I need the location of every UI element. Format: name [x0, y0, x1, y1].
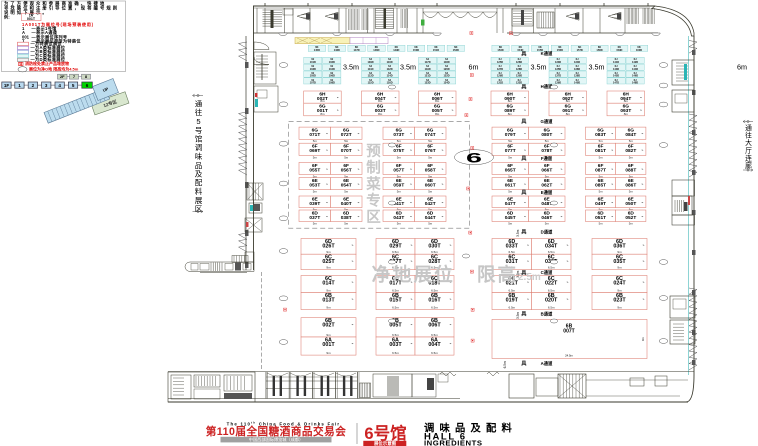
svg-text:141D: 141D: [613, 60, 619, 64]
svg-text:066T: 066T: [541, 167, 552, 173]
svg-text:112D: 112D: [387, 67, 393, 71]
svg-text:053T: 053T: [309, 183, 320, 189]
svg-text:025T: 025T: [322, 259, 335, 265]
svg-text:139D: 139D: [555, 81, 561, 85]
svg-text:135D: 135D: [555, 67, 561, 71]
svg-text:073T: 073T: [393, 132, 404, 138]
svg-text:120D: 120D: [443, 67, 449, 71]
svg-text:149D: 149D: [393, 48, 399, 52]
svg-text:调: 调: [195, 143, 203, 152]
svg-text:124D: 124D: [443, 81, 449, 85]
svg-text:002T: 002T: [322, 323, 335, 329]
svg-text:077T: 077T: [505, 148, 516, 154]
svg-text:C通道: C通道: [541, 269, 553, 276]
svg-text:F通道: F通道: [541, 155, 553, 162]
svg-text:6m: 6m: [469, 62, 479, 71]
svg-text:130D: 130D: [516, 74, 522, 78]
svg-text:9m: 9m: [617, 289, 622, 293]
svg-text:5m: 5m: [545, 221, 550, 225]
svg-text:8m: 8m: [435, 99, 440, 103]
svg-text:中国西部国际博览城（成都）: 中国西部国际博览城（成都）: [249, 436, 303, 443]
svg-text:126D: 126D: [516, 60, 522, 64]
svg-text:5m: 5m: [508, 155, 513, 159]
svg-text:8m: 8m: [624, 99, 629, 103]
svg-text:5m: 5m: [508, 190, 513, 194]
svg-text:029T: 029T: [389, 243, 402, 249]
svg-text:B通道: B通道: [541, 311, 553, 318]
svg-text:153D: 153D: [497, 48, 503, 52]
svg-text:具: 具: [520, 228, 527, 236]
svg-text:156D: 156D: [557, 48, 563, 52]
svg-text:019T: 019T: [506, 297, 519, 303]
svg-text:9m: 9m: [617, 266, 622, 270]
svg-text:043T: 043T: [393, 215, 404, 221]
svg-text:制: 制: [366, 159, 381, 177]
svg-text:6.5m: 6.5m: [548, 289, 555, 293]
svg-text:A通道: A通道: [541, 360, 553, 367]
svg-text:8m: 8m: [508, 99, 513, 103]
svg-text:122D: 122D: [443, 74, 449, 78]
svg-text:160D: 160D: [636, 48, 642, 52]
svg-text:159D: 159D: [616, 48, 622, 52]
svg-text:003T: 003T: [389, 342, 402, 348]
svg-text:040T: 040T: [341, 201, 352, 207]
svg-text:2F: 2F: [60, 74, 65, 79]
svg-text:034T: 034T: [545, 243, 558, 249]
svg-text:114D: 114D: [387, 74, 393, 78]
svg-text:6.5m: 6.5m: [392, 333, 399, 337]
svg-text:展: 展: [195, 196, 203, 205]
svg-text:5m: 5m: [508, 139, 513, 143]
svg-text:131D: 131D: [497, 81, 503, 85]
svg-text:137D: 137D: [555, 74, 561, 78]
svg-text:057T: 057T: [393, 167, 404, 173]
svg-text:8m: 8m: [320, 112, 325, 116]
svg-text:078T: 078T: [541, 148, 552, 154]
svg-text:087T: 087T: [595, 167, 606, 173]
svg-text:113D: 113D: [368, 74, 374, 78]
svg-text:5m: 5m: [599, 190, 604, 194]
svg-text:6.5m: 6.5m: [392, 351, 399, 355]
svg-text:056T: 056T: [341, 167, 352, 173]
svg-text:6.5m: 6.5m: [431, 289, 438, 293]
svg-text:限: 限: [477, 264, 496, 285]
svg-text:001T: 001T: [27, 17, 36, 21]
svg-text:INGREDIENTS: INGREDIENTS: [424, 438, 483, 446]
svg-text:044T: 044T: [425, 215, 436, 221]
svg-text:3.5m: 3.5m: [589, 62, 605, 71]
svg-text:6: 6: [86, 83, 89, 88]
svg-text:9m: 9m: [617, 250, 622, 254]
svg-text:145D: 145D: [314, 48, 320, 52]
svg-text:6m: 6m: [737, 62, 747, 71]
svg-text:116D: 116D: [387, 81, 393, 85]
svg-text:050T: 050T: [625, 201, 636, 207]
svg-text:013T: 013T: [322, 297, 335, 303]
svg-text:味: 味: [195, 151, 203, 161]
svg-text:馆: 馆: [195, 134, 203, 144]
svg-text:076T: 076T: [425, 148, 436, 154]
svg-text:148D: 148D: [632, 81, 638, 85]
svg-text:016T: 016T: [428, 297, 441, 303]
svg-text:8m: 8m: [435, 112, 440, 116]
svg-text:3.5m: 3.5m: [516, 270, 520, 277]
svg-text:015T: 015T: [389, 297, 402, 303]
svg-text:位: 位: [434, 264, 453, 285]
svg-text:净: 净: [372, 264, 391, 285]
svg-text:配: 配: [195, 178, 203, 187]
svg-text:8m: 8m: [566, 112, 571, 116]
svg-text:033T: 033T: [506, 243, 519, 249]
svg-text:5m: 5m: [508, 221, 513, 225]
svg-text:6.5m: 6.5m: [503, 361, 507, 368]
svg-text:138D: 138D: [574, 74, 580, 78]
svg-text:070T: 070T: [341, 148, 352, 154]
svg-text:高: 高: [498, 264, 517, 285]
svg-text:005T: 005T: [389, 323, 402, 329]
svg-text:连: 连: [745, 153, 752, 162]
svg-text:038T: 038T: [341, 215, 352, 221]
svg-text:5m: 5m: [397, 190, 402, 194]
svg-text:147D: 147D: [613, 81, 619, 85]
svg-text:5m: 5m: [629, 155, 634, 159]
svg-text:6.5m: 6.5m: [548, 250, 555, 254]
svg-text:24.5m: 24.5m: [565, 354, 573, 358]
svg-text:D通道: D通道: [541, 228, 553, 235]
svg-text:058T: 058T: [425, 167, 436, 173]
svg-text:128D: 128D: [516, 67, 522, 71]
svg-text:及: 及: [195, 170, 203, 179]
svg-text:6.5m: 6.5m: [392, 289, 399, 293]
svg-text:150D: 150D: [413, 48, 419, 52]
svg-text:074T: 074T: [425, 132, 436, 138]
svg-text:046T: 046T: [541, 215, 552, 221]
svg-text:022T: 022T: [545, 280, 558, 286]
svg-text:6.5m: 6.5m: [392, 306, 399, 310]
svg-text:往: 往: [745, 131, 752, 140]
svg-text:具: 具: [520, 188, 527, 196]
svg-text:065T: 065T: [505, 167, 516, 173]
svg-text:157D: 157D: [577, 48, 583, 52]
svg-text:3: 3: [45, 83, 48, 88]
svg-text:151D: 151D: [433, 48, 439, 52]
svg-text:5m: 5m: [313, 139, 318, 143]
svg-text:9m: 9m: [641, 336, 645, 341]
svg-text:119D: 119D: [425, 67, 431, 71]
svg-text:140D: 140D: [574, 81, 580, 85]
svg-text:136D: 136D: [574, 67, 580, 71]
svg-text:5m: 5m: [397, 139, 402, 143]
svg-text:料: 料: [195, 186, 203, 196]
svg-text:5m: 5m: [397, 221, 402, 225]
svg-text:1: 1: [18, 83, 21, 88]
svg-text:036T: 036T: [613, 243, 626, 249]
svg-text:9m: 9m: [326, 289, 331, 293]
svg-text:G通道: G通道: [541, 118, 554, 125]
svg-text:9m: 9m: [617, 306, 622, 310]
svg-text:消防栓处禁止产品堆放物: 消防栓处禁止产品堆放物: [25, 60, 69, 66]
svg-text:具: 具: [520, 154, 527, 162]
svg-text:6.5m: 6.5m: [508, 306, 515, 310]
svg-text:079T: 079T: [505, 132, 516, 138]
svg-text:5m: 5m: [313, 155, 318, 159]
svg-text:通: 通: [745, 123, 752, 132]
svg-text:088T: 088T: [625, 167, 636, 173]
svg-text:3.5m: 3.5m: [516, 312, 520, 319]
svg-text:129D: 129D: [497, 74, 503, 78]
svg-text:5m: 5m: [397, 155, 402, 159]
svg-text:6.5m: 6.5m: [508, 289, 515, 293]
svg-text:071T: 071T: [309, 132, 320, 138]
svg-text:地: 地: [393, 264, 412, 285]
svg-text:085T: 085T: [595, 183, 606, 189]
svg-text:060T: 060T: [425, 183, 436, 189]
svg-text:026T: 026T: [322, 243, 335, 249]
svg-text:5m: 5m: [629, 190, 634, 194]
svg-text:148D: 148D: [373, 48, 379, 52]
svg-text:052T: 052T: [625, 215, 636, 221]
svg-text:110D: 110D: [387, 60, 393, 64]
svg-text:5m: 5m: [428, 139, 433, 143]
svg-text:037T: 037T: [309, 215, 320, 221]
svg-text:152D: 152D: [453, 48, 459, 52]
svg-text:6.5m: 6.5m: [548, 306, 555, 310]
svg-text:8m: 8m: [378, 99, 383, 103]
svg-text:1F: 1F: [4, 83, 10, 88]
svg-text:5m: 5m: [428, 221, 433, 225]
svg-text:3.5m: 3.5m: [531, 62, 547, 71]
svg-text:5m: 5m: [344, 155, 349, 159]
svg-text:5m: 5m: [629, 139, 634, 143]
svg-text:K通道: K通道: [541, 50, 553, 57]
svg-text:6: 6: [466, 151, 483, 166]
svg-text:往: 往: [195, 107, 203, 117]
svg-text:059T: 059T: [393, 183, 404, 189]
svg-text:8m: 8m: [378, 112, 383, 116]
svg-text:006T: 006T: [428, 323, 441, 329]
svg-text:5m: 5m: [428, 190, 433, 194]
svg-text:103D: 103D: [310, 67, 316, 71]
svg-text:9m: 9m: [326, 306, 331, 310]
svg-text:9m: 9m: [326, 351, 331, 355]
svg-text:001T: 001T: [322, 342, 335, 348]
svg-text:145D: 145D: [613, 74, 619, 78]
svg-text:133D: 133D: [555, 60, 561, 64]
svg-text:消: 消: [19, 61, 22, 66]
svg-text:020T: 020T: [545, 297, 558, 303]
svg-text:展位为净O地 限高均为4.5m: 展位为净O地 限高均为4.5m: [28, 66, 79, 72]
svg-text:号: 号: [195, 126, 203, 135]
svg-text:054T: 054T: [341, 183, 352, 189]
svg-text:045T: 045T: [505, 215, 516, 221]
svg-text:5m: 5m: [599, 221, 604, 225]
svg-text:2: 2: [32, 83, 35, 88]
svg-text:121D: 121D: [424, 74, 430, 78]
svg-text:6.5m: 6.5m: [392, 250, 399, 254]
svg-text:5m: 5m: [599, 139, 604, 143]
svg-text:075T: 075T: [393, 148, 404, 154]
svg-text:024T: 024T: [613, 280, 626, 286]
svg-text:第110届全国糖酒商品交易会: 第110届全国糖酒商品交易会: [206, 425, 347, 438]
svg-text:菜: 菜: [365, 175, 381, 193]
svg-text:5m: 5m: [599, 155, 604, 159]
svg-text:049T: 049T: [595, 201, 606, 207]
svg-text:品: 品: [195, 161, 203, 170]
svg-text:125D: 125D: [497, 60, 503, 64]
svg-text:108D: 108D: [329, 81, 335, 85]
svg-text:3.5m: 3.5m: [516, 229, 520, 236]
svg-text:具: 具: [520, 268, 527, 276]
svg-text:6.5m: 6.5m: [508, 250, 515, 254]
svg-text:预: 预: [366, 143, 381, 160]
svg-text:8m: 8m: [508, 112, 513, 116]
svg-text:055T: 055T: [309, 167, 320, 173]
svg-text:通: 通: [195, 99, 203, 109]
svg-text:6.5m: 6.5m: [431, 351, 438, 355]
svg-text:9m: 9m: [326, 266, 331, 270]
svg-text:5m: 5m: [313, 190, 318, 194]
svg-text:109D: 109D: [367, 60, 373, 64]
svg-text:大: 大: [745, 138, 752, 147]
svg-text:具: 具: [520, 310, 527, 318]
svg-text:143D: 143D: [613, 67, 619, 71]
svg-text:5: 5: [196, 117, 200, 126]
svg-text:104D: 104D: [329, 67, 335, 71]
svg-text:146D: 146D: [334, 48, 340, 52]
svg-text:035T: 035T: [613, 259, 626, 265]
svg-text:051T: 051T: [595, 215, 606, 221]
svg-text:062T: 062T: [541, 183, 552, 189]
svg-text:具: 具: [520, 359, 527, 367]
svg-text:5: 5: [72, 83, 75, 88]
svg-text:专: 专: [366, 192, 381, 210]
svg-text:004T: 004T: [428, 342, 441, 348]
svg-text:E通道: E通道: [541, 189, 553, 196]
svg-text:105D: 105D: [310, 74, 316, 78]
svg-text:061T: 061T: [505, 183, 516, 189]
svg-text:厅: 厅: [745, 147, 752, 155]
svg-text:115D: 115D: [368, 81, 374, 85]
svg-text:具: 具: [520, 117, 527, 125]
svg-text:007T: 007T: [563, 328, 574, 334]
svg-text:6.5m: 6.5m: [548, 266, 555, 270]
svg-text:9m: 9m: [326, 333, 331, 337]
svg-text:3.5m: 3.5m: [343, 62, 359, 71]
svg-text:3.5m: 3.5m: [400, 62, 416, 71]
svg-text:5m: 5m: [313, 221, 318, 225]
svg-text:6.5m: 6.5m: [431, 333, 438, 337]
svg-text:042T: 042T: [425, 201, 436, 207]
svg-text:5m: 5m: [428, 155, 433, 159]
svg-text:6号馆: 6号馆: [364, 423, 406, 443]
svg-text:014T: 014T: [322, 280, 335, 286]
svg-text:106D: 106D: [329, 74, 335, 78]
svg-text:083T: 083T: [595, 132, 606, 138]
svg-text:区: 区: [366, 209, 381, 226]
svg-text:081T: 081T: [595, 148, 606, 154]
svg-text:101D: 101D: [310, 60, 316, 64]
svg-text:展: 展: [414, 264, 433, 285]
svg-text:4: 4: [58, 83, 61, 88]
svg-text:118D: 118D: [444, 60, 450, 64]
svg-text:039T: 039T: [309, 201, 320, 207]
svg-text:023T: 023T: [613, 297, 626, 303]
svg-text:102D: 102D: [329, 60, 335, 64]
svg-text:144D: 144D: [632, 67, 638, 71]
svg-text:030T: 030T: [428, 243, 441, 249]
svg-text:5m: 5m: [545, 139, 550, 143]
svg-text:080T: 080T: [541, 132, 552, 138]
svg-text:例：: 例：: [4, 14, 12, 20]
svg-text:123D: 123D: [424, 81, 430, 85]
svg-text:111D: 111D: [368, 67, 374, 71]
svg-text:047T: 047T: [505, 201, 516, 207]
svg-text:142D: 142D: [632, 60, 638, 64]
svg-text:147D: 147D: [353, 48, 359, 52]
svg-text:069T: 069T: [309, 148, 320, 154]
svg-text:5m: 5m: [344, 190, 349, 194]
svg-text:具: 具: [520, 49, 527, 57]
svg-text:9m: 9m: [326, 250, 331, 254]
svg-text:158D: 158D: [596, 48, 602, 52]
svg-text:134D: 134D: [574, 60, 580, 64]
svg-text:084T: 084T: [625, 132, 636, 138]
svg-text:8m: 8m: [624, 112, 629, 116]
svg-text:082T: 082T: [625, 148, 636, 154]
svg-text:8m: 8m: [320, 99, 325, 103]
svg-text:072T: 072T: [341, 132, 352, 138]
svg-text:6.5m: 6.5m: [431, 250, 438, 254]
svg-text:5m: 5m: [344, 221, 349, 225]
svg-text:6.5m: 6.5m: [431, 306, 438, 310]
svg-text:117D: 117D: [425, 60, 431, 64]
svg-text:5m: 5m: [344, 139, 349, 143]
svg-text:展位示意图: 展位示意图: [374, 440, 397, 446]
svg-text:具: 具: [520, 82, 527, 90]
svg-text:107D: 107D: [310, 81, 316, 85]
svg-text:127D: 127D: [497, 67, 503, 71]
svg-text:5m: 5m: [629, 221, 634, 225]
svg-text:146D: 146D: [632, 74, 638, 78]
svg-text:8m: 8m: [566, 99, 571, 103]
svg-text:086T: 086T: [625, 183, 636, 189]
